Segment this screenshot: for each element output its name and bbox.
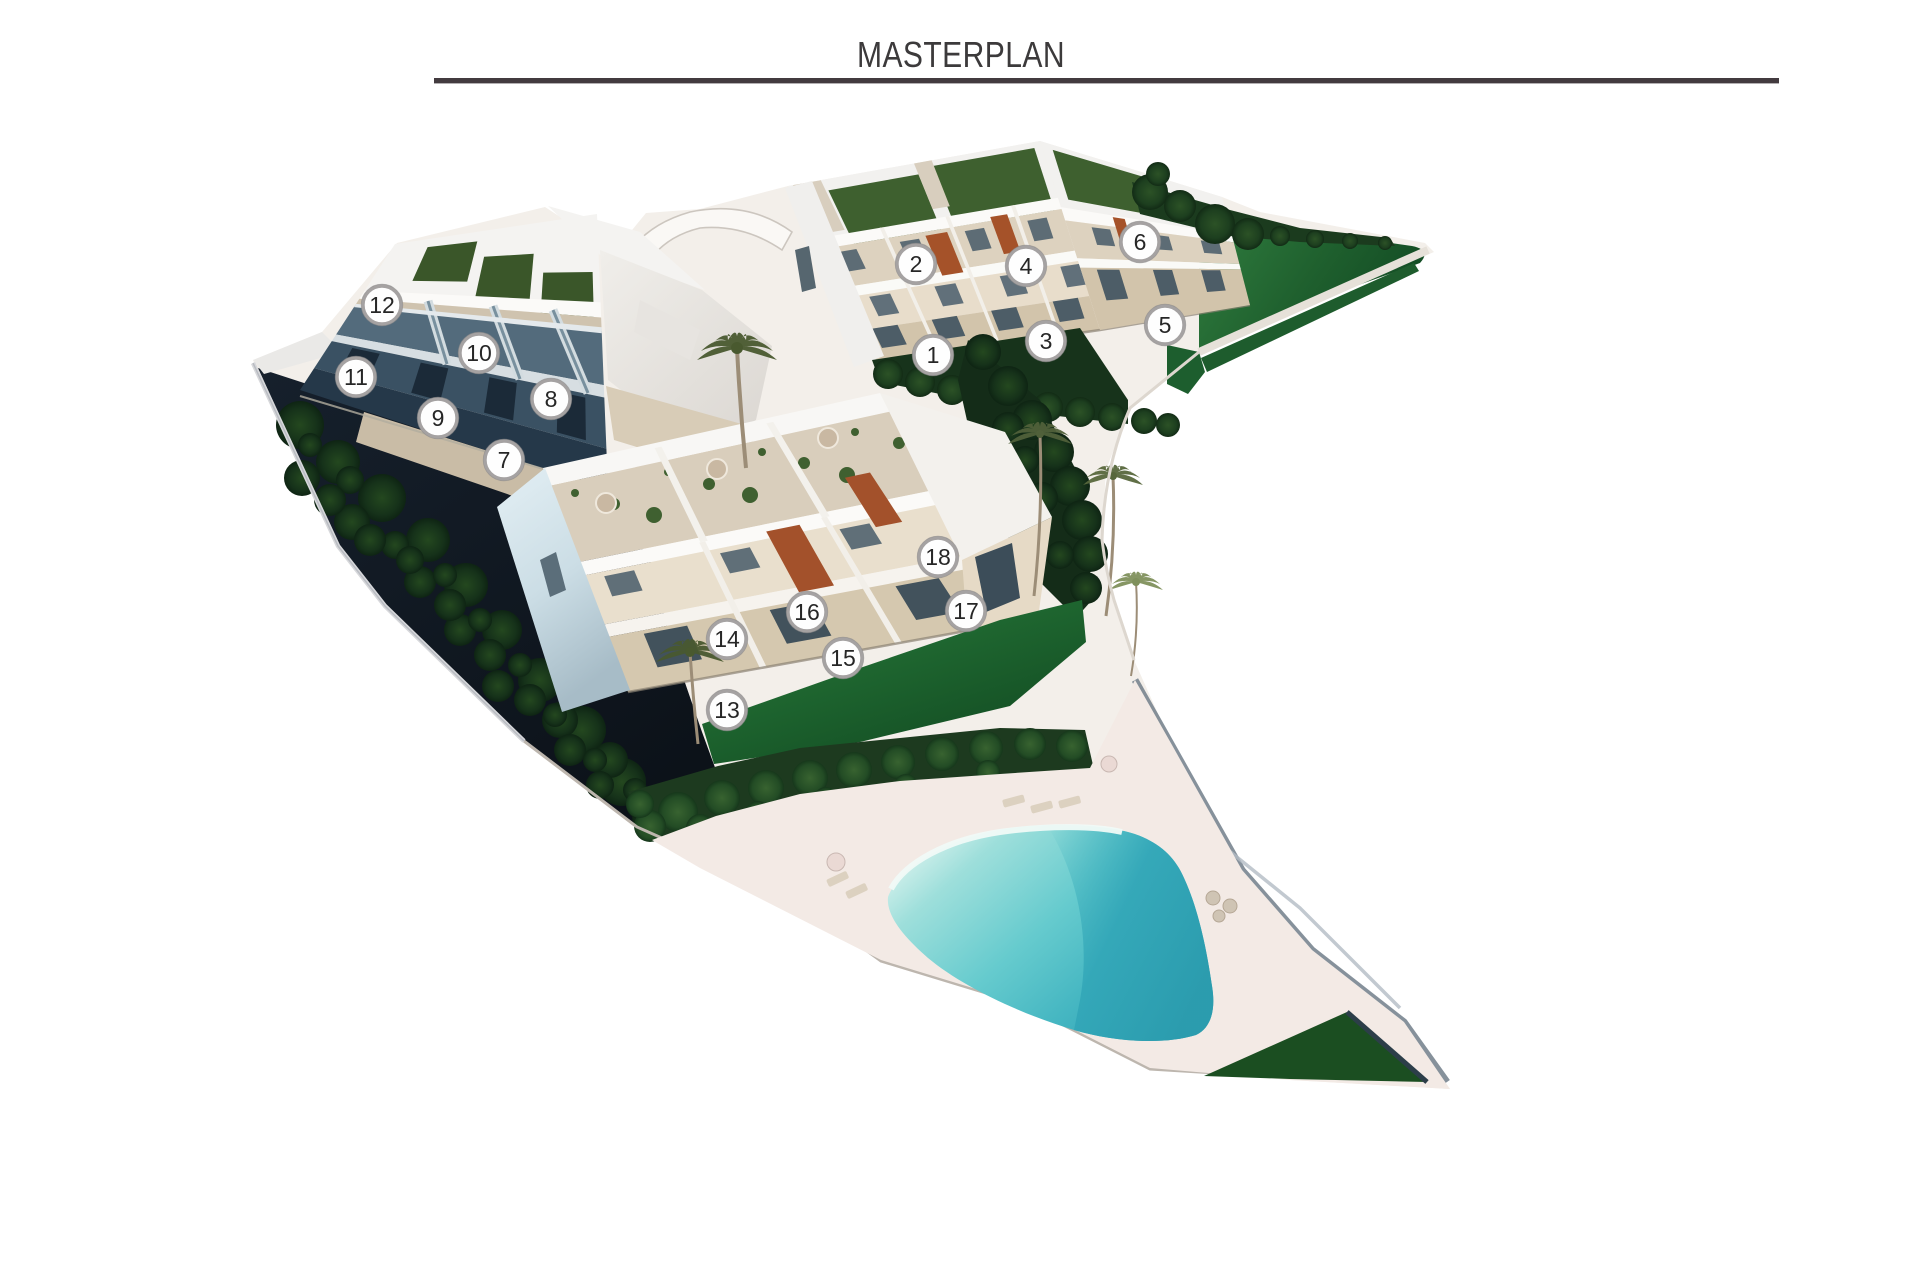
svg-text:8: 8 xyxy=(545,386,558,412)
svg-text:12: 12 xyxy=(369,292,395,318)
svg-text:14: 14 xyxy=(714,626,740,652)
svg-text:16: 16 xyxy=(794,599,820,625)
svg-text:17: 17 xyxy=(953,598,979,624)
svg-text:MASTERPLAN: MASTERPLAN xyxy=(857,34,1065,75)
svg-text:2: 2 xyxy=(910,251,923,277)
svg-text:5: 5 xyxy=(1159,312,1172,338)
svg-text:13: 13 xyxy=(714,697,740,723)
svg-text:1: 1 xyxy=(927,342,940,368)
svg-text:11: 11 xyxy=(344,364,368,390)
svg-text:3: 3 xyxy=(1040,328,1053,354)
svg-text:6: 6 xyxy=(1134,229,1147,255)
svg-text:10: 10 xyxy=(466,340,492,366)
svg-text:15: 15 xyxy=(830,645,856,671)
svg-text:7: 7 xyxy=(498,447,511,473)
svg-text:9: 9 xyxy=(432,405,445,431)
svg-text:18: 18 xyxy=(925,544,951,570)
svg-text:4: 4 xyxy=(1020,253,1033,279)
